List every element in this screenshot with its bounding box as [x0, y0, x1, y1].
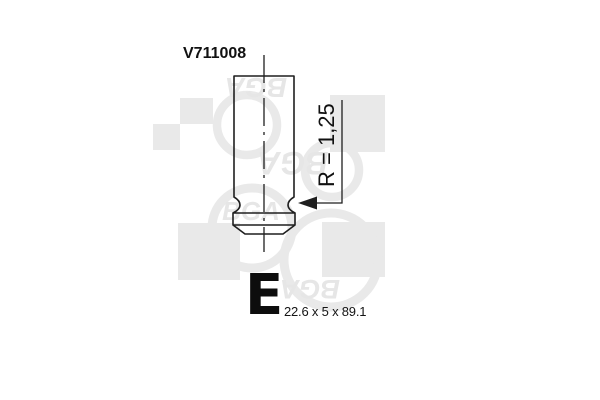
- radius-arrow-icon: [298, 197, 317, 210]
- product-drawing-canvas: BGA BGA BGA BGA V711008 R = 1,25 E 22.6 …: [0, 0, 600, 400]
- valve-type-letter: E: [245, 263, 283, 328]
- part-number-label: V711008: [183, 45, 246, 62]
- bga-watermark-text: BGA: [222, 196, 280, 226]
- radius-value-label: R = 1,25: [314, 103, 339, 187]
- bga-watermark-checker-square: [180, 98, 213, 124]
- valve-dimensions-label: 22.6 x 5 x 89.1: [284, 304, 366, 319]
- bga-watermark-text: BGA: [280, 274, 340, 304]
- bga-watermark-checker-square: [153, 124, 180, 150]
- valve-technical-drawing: BGA BGA BGA BGA V711008 R = 1,25 E 22.6 …: [0, 0, 600, 400]
